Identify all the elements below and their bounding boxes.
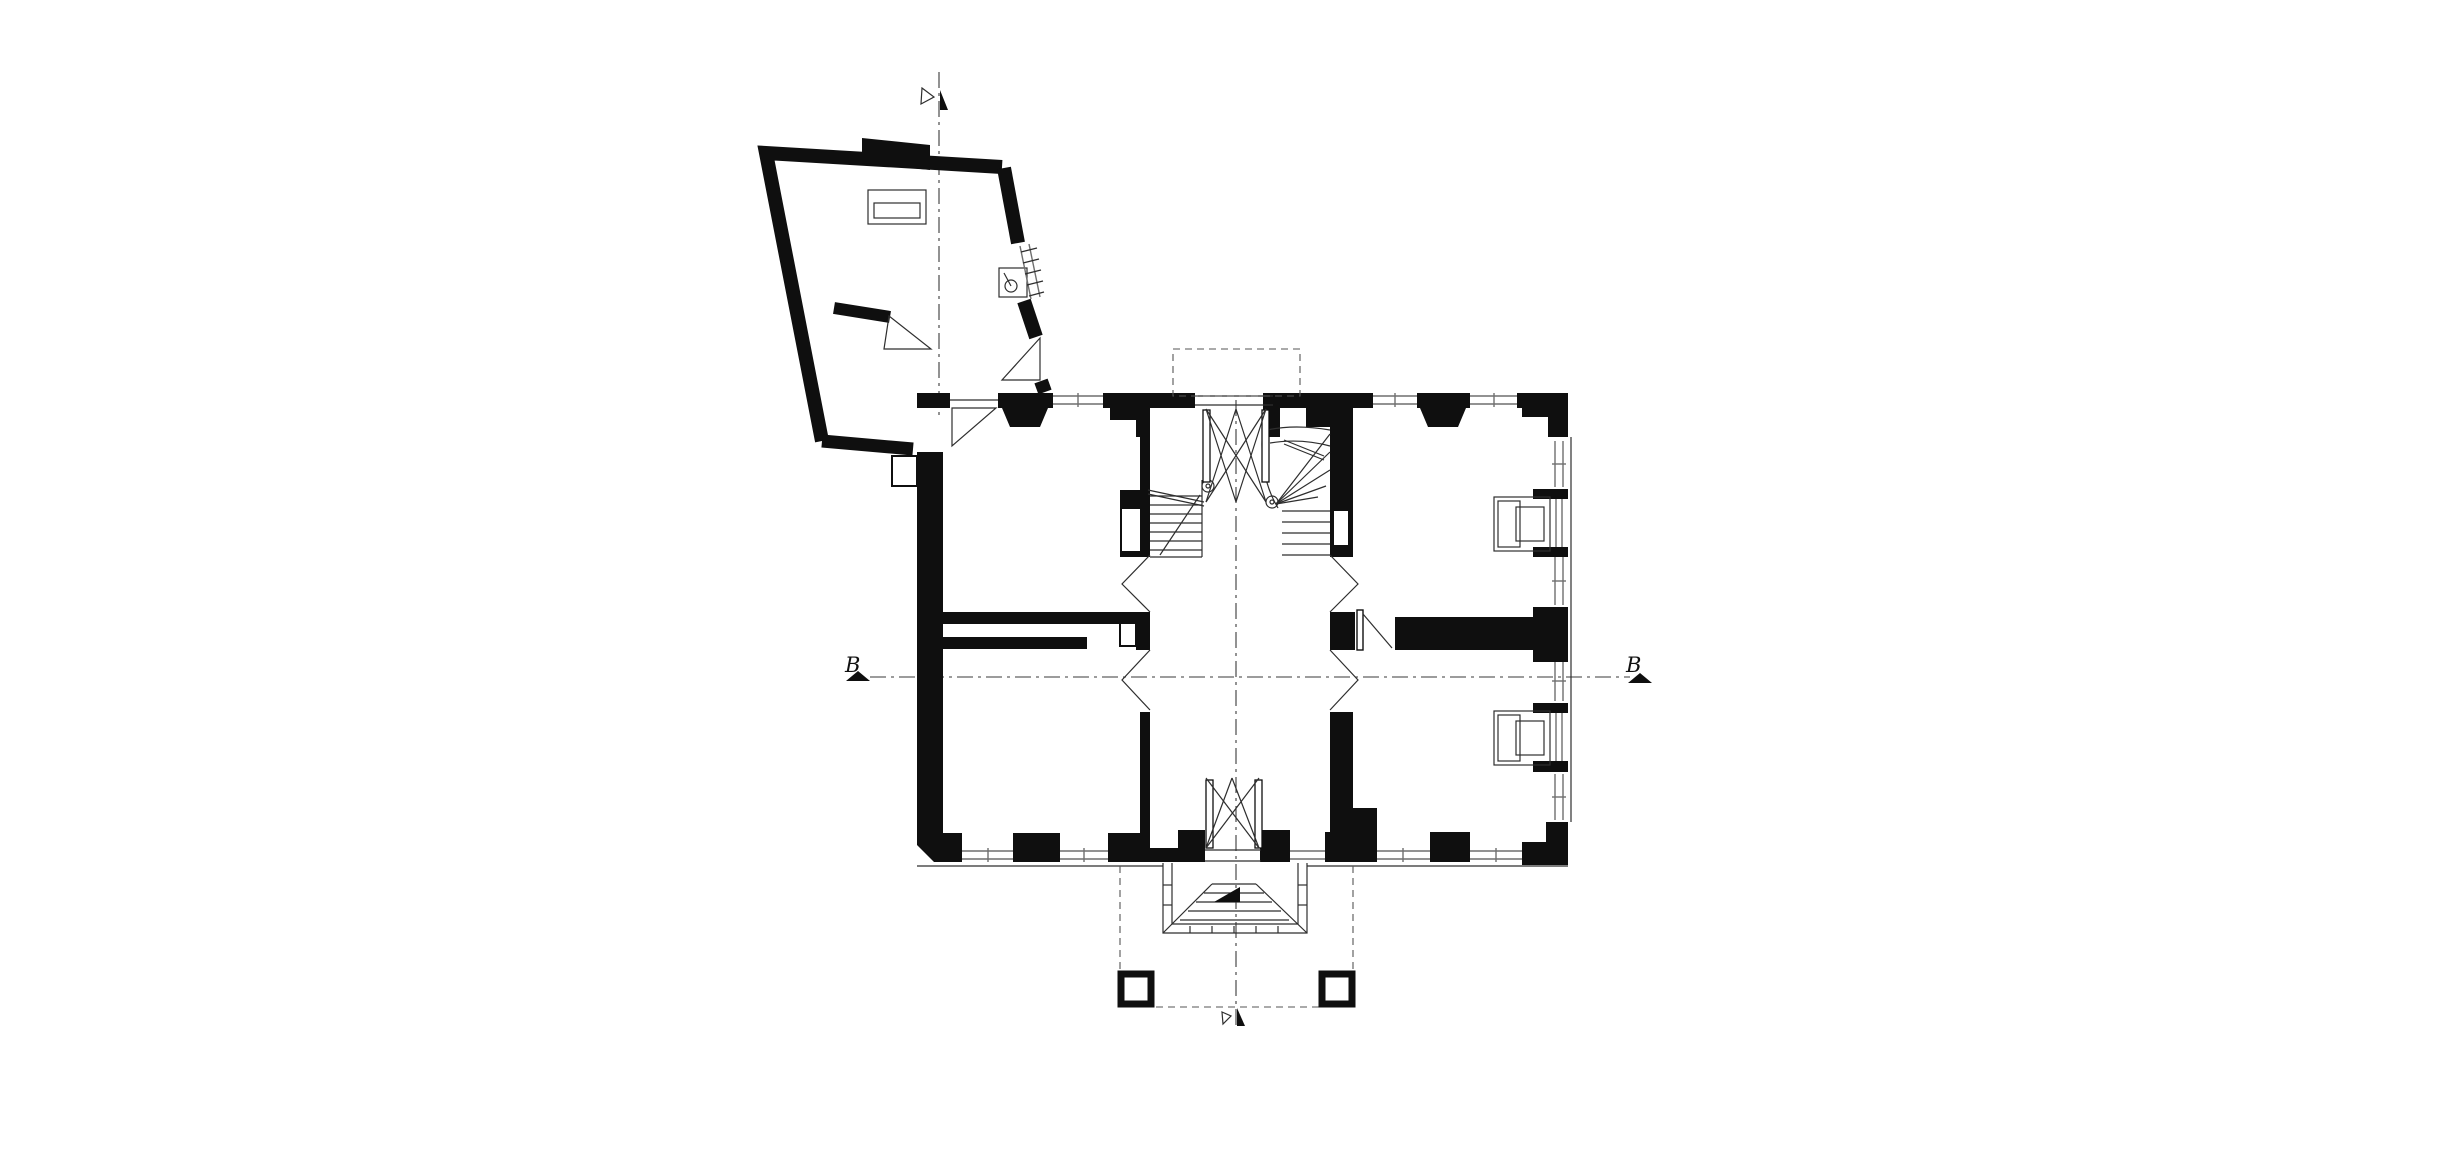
annex-outer-wall (766, 153, 1002, 441)
west-wall-pilaster (892, 456, 917, 486)
step-arrow (1214, 887, 1240, 902)
annex-partition (834, 308, 890, 317)
door-leaf (1357, 610, 1363, 650)
entrance-steps (1163, 863, 1307, 933)
section-marker-right: B (1625, 653, 1652, 683)
stair-straight-flight (1148, 480, 1214, 557)
masonry-stove-annex (868, 190, 926, 224)
floor-plan-canvas: B B (0, 0, 2460, 1165)
marker-open-triangle (921, 88, 934, 104)
section-marker-left: B (844, 653, 870, 681)
chimney-pier-left (1002, 408, 1048, 427)
chimney-pier-right (1420, 408, 1466, 427)
entrance-pier-east (1260, 830, 1290, 862)
entrance-pier-west (1178, 830, 1205, 862)
section-marker-top (921, 88, 948, 110)
right-partition (1395, 617, 1537, 650)
terrace-pier-left (1121, 974, 1151, 1004)
annex-connector-wall (822, 441, 913, 449)
main-block (892, 393, 1571, 866)
sink-symbol (999, 268, 1027, 297)
stair-winder-flight (1262, 425, 1330, 555)
marker-open-triangle (1222, 1012, 1231, 1024)
left-partition-upper (943, 612, 1150, 624)
west-wall (917, 452, 943, 833)
tiled-stove-upper (1494, 497, 1550, 551)
hall-opening-chevrons (1122, 555, 1358, 710)
entrance-door-swing (1206, 778, 1262, 848)
garden-porch-outline (1173, 349, 1300, 396)
section-label: B (1625, 653, 1641, 677)
east-mid-pier (1533, 607, 1568, 662)
tiled-stove-lower (1494, 711, 1550, 765)
floor-plan-page: B B (0, 0, 2460, 1165)
annex-window-hatched (1020, 244, 1044, 299)
left-partition-lower (943, 637, 1087, 649)
marker-filled-triangle (1237, 1008, 1245, 1026)
marker-filled-triangle (940, 90, 948, 110)
sw-corner-pier (917, 833, 962, 862)
section-marker-bottom (1222, 1008, 1245, 1026)
terrace-pier-right (1322, 974, 1352, 1004)
